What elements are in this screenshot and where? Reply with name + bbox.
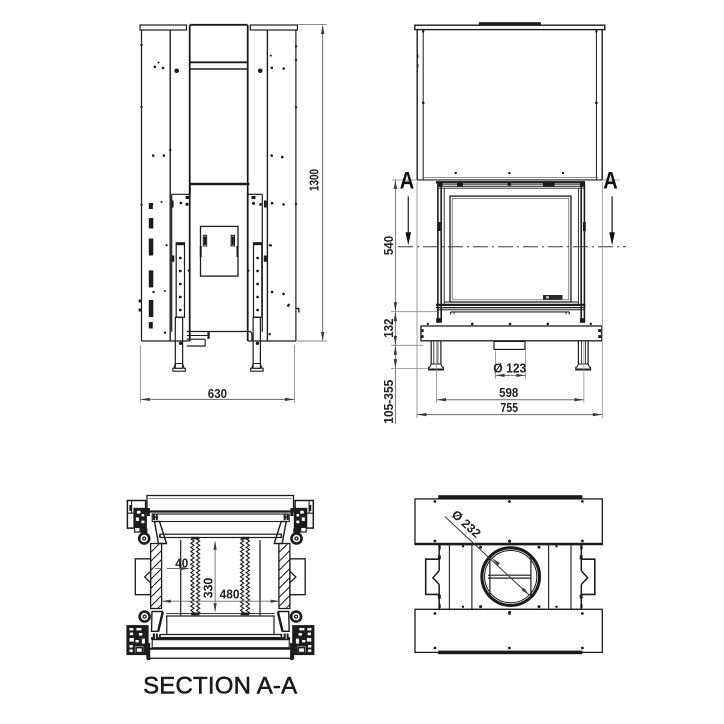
svg-text:540: 540 bbox=[382, 236, 396, 255]
svg-text:A: A bbox=[400, 168, 415, 195]
svg-text:480: 480 bbox=[220, 588, 240, 602]
svg-text:755: 755 bbox=[501, 401, 519, 415]
svg-text:Ø 232: Ø 232 bbox=[449, 507, 484, 540]
svg-text:Ø 123: Ø 123 bbox=[493, 362, 526, 376]
svg-text:105-355: 105-355 bbox=[382, 380, 396, 424]
svg-text:132: 132 bbox=[382, 319, 396, 338]
svg-text:630: 630 bbox=[208, 387, 227, 401]
svg-text:598: 598 bbox=[499, 386, 518, 400]
svg-text:SECTION A-A: SECTION A-A bbox=[143, 673, 297, 700]
svg-text:A: A bbox=[603, 168, 618, 195]
svg-text:330: 330 bbox=[202, 578, 216, 599]
svg-text:1300: 1300 bbox=[307, 169, 321, 191]
